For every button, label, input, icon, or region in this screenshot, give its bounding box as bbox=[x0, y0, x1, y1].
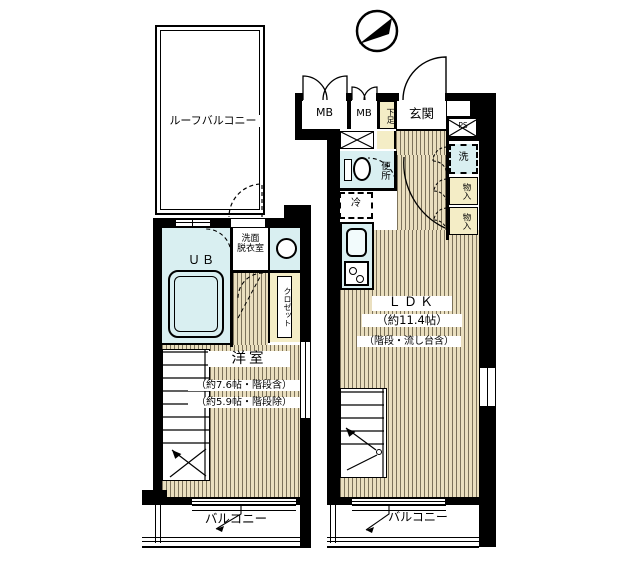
mb-left-wall bbox=[295, 101, 302, 129]
right-balcony-rail-bottom bbox=[327, 537, 479, 548]
bathtub-icon bbox=[168, 270, 224, 338]
mb1-door-gap bbox=[303, 93, 346, 101]
right-bottom-window bbox=[352, 498, 445, 505]
alcove bbox=[447, 101, 470, 116]
toilet-icon bbox=[353, 157, 371, 181]
western-room-size1-label: （約7.6帖・階段含） bbox=[188, 380, 300, 391]
left-right-window bbox=[300, 342, 311, 418]
left-hall-floor bbox=[233, 273, 268, 348]
cream-cabinet bbox=[377, 131, 394, 149]
right-right-window bbox=[479, 368, 496, 406]
closet-label: クロゼット bbox=[278, 279, 291, 335]
floor-plan: ルーフバルコニー ＵＢ 洗面 脱衣室 クロゼット 洋室 （約7.6帖・階段含） … bbox=[0, 0, 640, 569]
entrance-door-gap bbox=[399, 93, 445, 101]
hall-partition bbox=[233, 270, 300, 273]
shoe-cabinet-label: 下足 bbox=[381, 104, 394, 127]
stove-icon bbox=[344, 261, 369, 286]
right-right-wall bbox=[479, 93, 496, 547]
roof-balcony-label: ルーフバルコニー bbox=[163, 115, 263, 127]
mb2-door-gap bbox=[352, 93, 376, 101]
left-bottom-window bbox=[192, 498, 296, 505]
entry-step-line bbox=[396, 129, 446, 131]
ps-label: PS bbox=[455, 122, 471, 130]
mb2-label: MB bbox=[351, 108, 377, 119]
mb1-label: MB bbox=[302, 107, 347, 119]
toilet-tank bbox=[344, 159, 352, 181]
washroom-label: 洗面 脱衣室 bbox=[232, 234, 269, 254]
left-balcony-label: バルコニー bbox=[192, 512, 280, 526]
kitchen-sink-icon bbox=[346, 228, 367, 257]
right-left-wall bbox=[327, 129, 340, 505]
storage1-label: 物入 bbox=[457, 180, 470, 203]
fridge-label: 冷 bbox=[339, 198, 373, 209]
mb-sliver-2 bbox=[377, 101, 379, 129]
toilet-label: 便所 bbox=[374, 155, 389, 185]
right-entry-hall-floor bbox=[396, 131, 446, 155]
right-stairs bbox=[340, 388, 387, 478]
washbasin-icon bbox=[276, 238, 297, 259]
linework-layer bbox=[0, 0, 640, 569]
ldk-label: ＬＤＫ bbox=[372, 296, 452, 311]
left-top-door-gap bbox=[231, 219, 265, 227]
right-corridor-floor bbox=[397, 155, 446, 230]
ldk-note-label: （階段・流し台含） bbox=[357, 336, 461, 347]
left-top-window bbox=[176, 219, 210, 227]
right-balcony-label: バルコニー bbox=[376, 511, 460, 524]
left-stairs bbox=[162, 349, 210, 481]
ub-label: ＵＢ bbox=[178, 254, 226, 267]
washer-label: 洗 bbox=[449, 152, 478, 163]
western-room-size2-label: （約5.9帖・階段除） bbox=[188, 397, 300, 408]
western-room-label: 洋室 bbox=[208, 351, 290, 367]
left-bottomleft-corner bbox=[142, 490, 167, 505]
north-arrow-icon bbox=[357, 11, 397, 51]
storage2-label: 物入 bbox=[457, 210, 470, 233]
ps-box-left bbox=[340, 131, 374, 149]
toilet-right-wall bbox=[394, 151, 397, 188]
left-left-wall bbox=[153, 218, 162, 505]
ldk-size-label: （約11.4帖） bbox=[362, 314, 462, 327]
toilet-bottom-wall bbox=[340, 188, 397, 191]
left-balcony-rail-bottom bbox=[142, 537, 311, 548]
entrance-label: 玄関 bbox=[397, 107, 446, 121]
cream-sliver bbox=[394, 131, 396, 149]
